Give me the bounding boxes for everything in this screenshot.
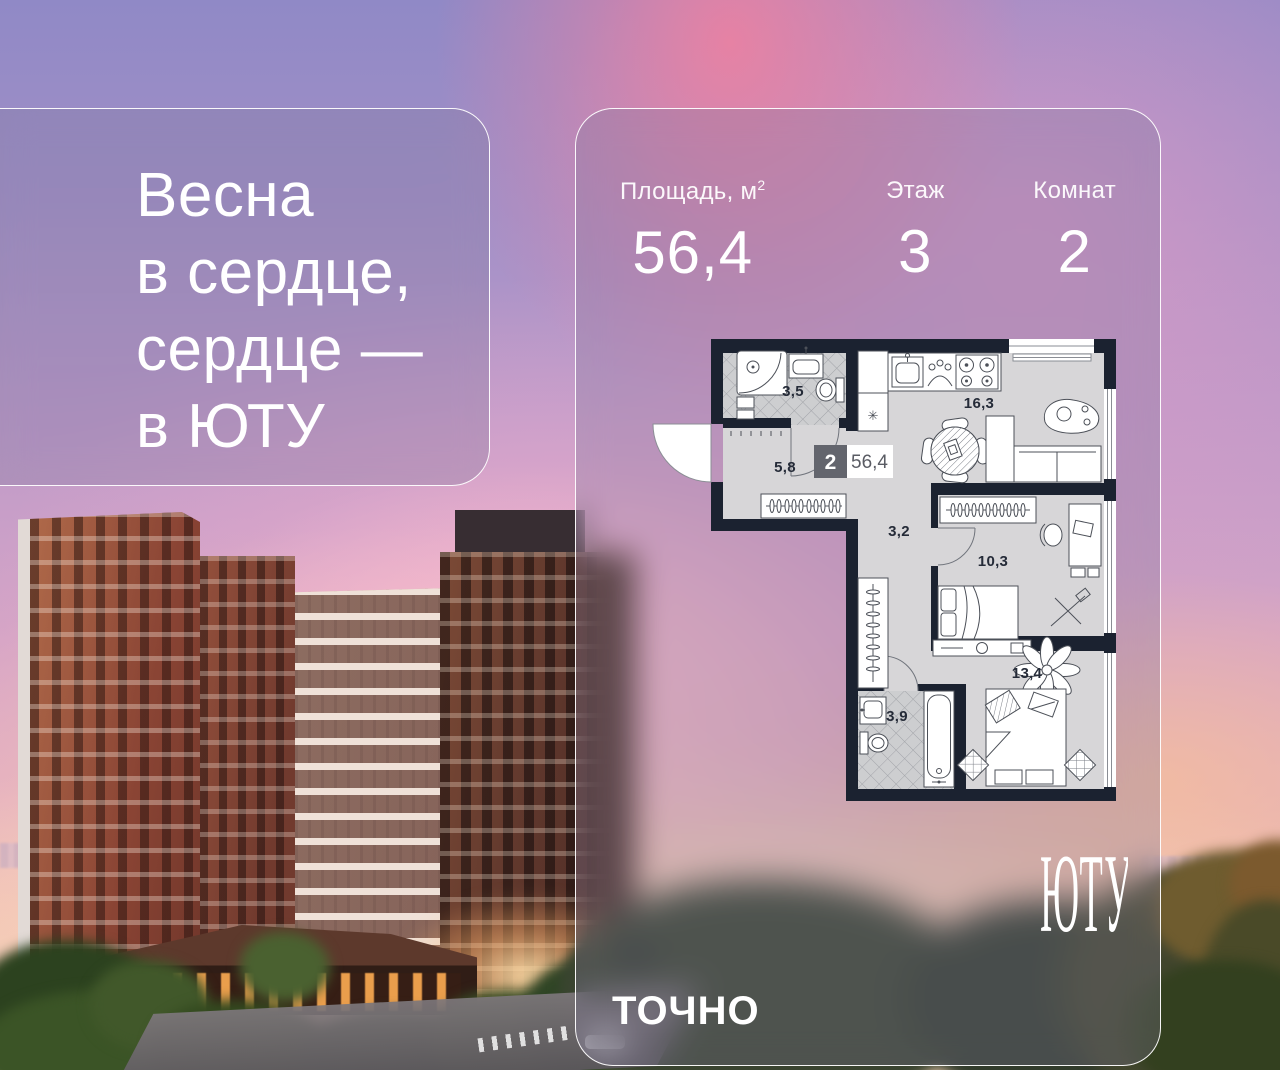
developer-logo-tochno: ТОЧНО xyxy=(612,989,760,1034)
wardrobe-corridor xyxy=(858,578,888,688)
stat-area: Площадь, м2 56,4 xyxy=(620,177,765,287)
stat-rooms-label: Комнат xyxy=(1033,177,1116,205)
bathtub xyxy=(924,691,954,787)
desk-chair xyxy=(1044,524,1062,546)
room-area-bedroom-small: 10,3 xyxy=(978,553,1008,570)
stat-area-label: Площадь, м2 xyxy=(620,177,765,206)
stat-rooms: Комнат 2 xyxy=(1033,177,1116,287)
badge-rooms-count: 2 xyxy=(825,451,837,474)
headline-line: в ЮТУ xyxy=(136,388,489,465)
yutu-logo-text: ЮТУ xyxy=(1040,853,1128,956)
tv-console xyxy=(933,640,1031,656)
headline-card: Весна в сердце, сердце — в ЮТУ xyxy=(0,108,490,486)
project-logo-yutu: ЮТУ xyxy=(1040,853,1128,966)
stat-floor-label: Этаж xyxy=(886,177,945,205)
room-area-corridor: 3,2 xyxy=(888,523,910,540)
bed-large xyxy=(985,689,1066,786)
headline-line: Весна xyxy=(136,157,489,234)
shaft-symbol: ✳ xyxy=(868,408,879,423)
stat-floor-value: 3 xyxy=(886,217,945,286)
apartment-card[interactable]: Площадь, м2 56,4 Этаж 3 Комнат 2 xyxy=(575,108,1161,1066)
cabinet xyxy=(737,410,754,419)
stat-floor: Этаж 3 xyxy=(886,177,945,287)
badge-total-area: 56,4 xyxy=(851,452,888,473)
room-area-bathroom-large: 3,9 xyxy=(886,708,908,725)
entry-door-leaf xyxy=(653,424,711,482)
stat-area-label-sup: 2 xyxy=(757,177,765,193)
building-tower xyxy=(18,512,200,1012)
toilet xyxy=(836,378,844,402)
apartment-stats: Площадь, м2 56,4 Этаж 3 Комнат 2 xyxy=(576,109,1160,287)
bed-small xyxy=(938,586,1018,639)
tree xyxy=(240,932,330,1002)
closet-bedroom-small xyxy=(940,497,1036,523)
room-area-kitchen-living: 16,3 xyxy=(964,395,994,412)
cabinet xyxy=(737,397,754,408)
room-area-bathroom-small: 3,5 xyxy=(782,383,804,400)
floorplan: ✳ xyxy=(701,334,1121,804)
yutu-logo-svg: ЮТУ xyxy=(1040,853,1128,961)
plan-badge: 2 56,4 xyxy=(814,445,893,478)
stat-area-value: 56,4 xyxy=(620,218,765,287)
room-area-hallway: 5,8 xyxy=(774,459,796,476)
room-area-bedroom-large: 13,4 xyxy=(1012,665,1043,682)
stat-area-label-text: Площадь, м xyxy=(620,178,757,205)
floorplan-svg: ✳ xyxy=(701,334,1121,804)
toilet-2 xyxy=(860,732,868,754)
wardrobe-hallway xyxy=(761,494,846,518)
headline-line: в сердце, xyxy=(136,234,489,311)
headline-line: сердце — xyxy=(136,311,489,388)
ad-banner: Весна в сердце, сердце — в ЮТУ Площадь, … xyxy=(0,0,1280,1070)
shower xyxy=(737,351,787,395)
stat-rooms-value: 2 xyxy=(1033,217,1116,286)
